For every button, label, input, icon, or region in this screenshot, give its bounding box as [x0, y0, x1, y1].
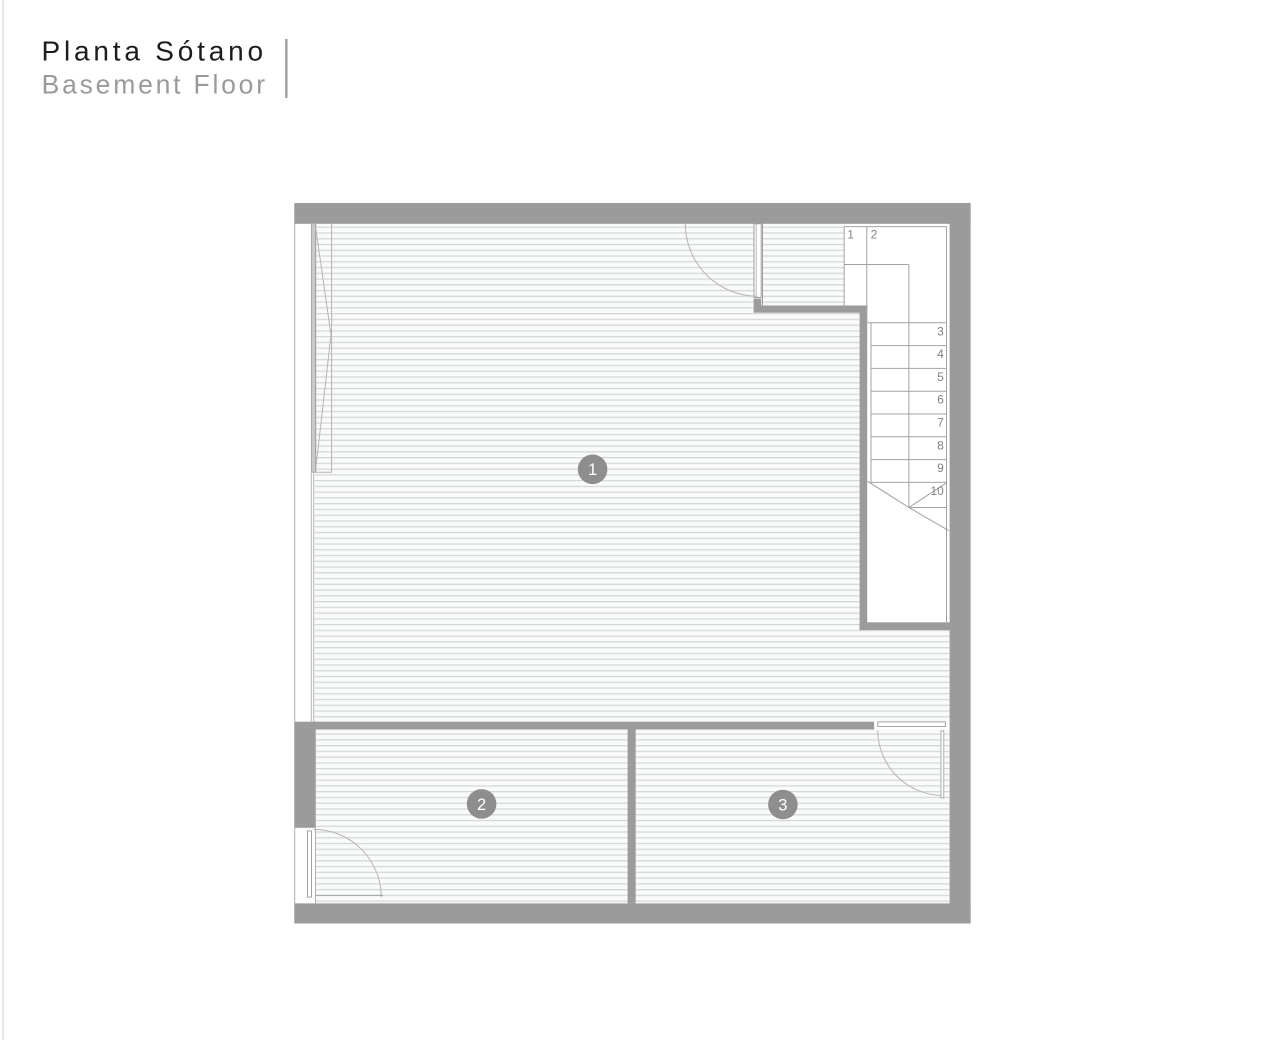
svg-text:8: 8: [937, 438, 944, 452]
svg-text:Basement Floor: Basement Floor: [42, 70, 268, 100]
svg-text:Planta Sótano: Planta Sótano: [42, 36, 267, 67]
svg-text:1: 1: [847, 228, 854, 242]
svg-text:3: 3: [778, 796, 787, 814]
svg-text:3: 3: [937, 324, 944, 338]
svg-text:10: 10: [930, 484, 944, 498]
svg-text:1: 1: [588, 461, 597, 479]
svg-text:2: 2: [871, 228, 878, 242]
svg-text:5: 5: [937, 370, 944, 384]
svg-text:2: 2: [477, 796, 486, 814]
svg-text:9: 9: [937, 461, 944, 475]
svg-text:7: 7: [937, 416, 944, 430]
svg-text:6: 6: [937, 393, 944, 407]
svg-text:4: 4: [937, 347, 944, 361]
